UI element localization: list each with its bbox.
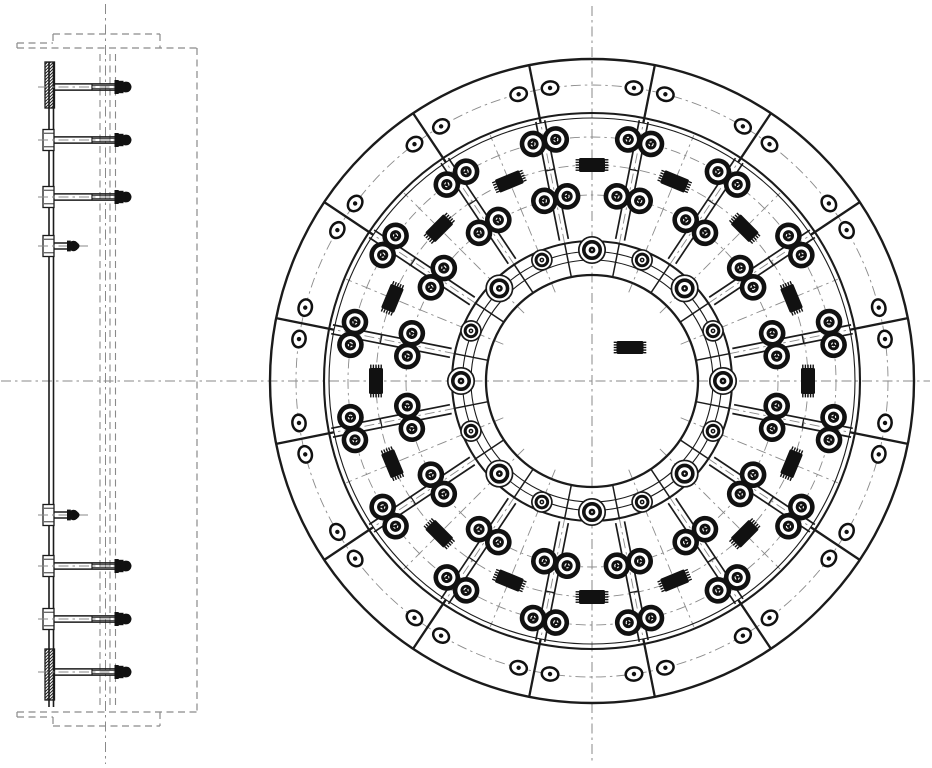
- arm-bolt: [615, 126, 641, 152]
- hub-joint-line: [651, 265, 670, 293]
- spoke-arm: [394, 457, 552, 662]
- drawing-canvas: [0, 0, 932, 768]
- pad-holder: [369, 365, 383, 398]
- serrated-pad: [657, 568, 693, 593]
- hub-joint-line: [514, 469, 533, 497]
- pad-holder: [801, 365, 815, 398]
- hub-bolt-large: [710, 368, 736, 394]
- spoke-arm: [632, 101, 790, 306]
- rim-segment-bolt: [625, 80, 643, 95]
- arm-bolt: [764, 343, 790, 369]
- hub-bolt-large: [579, 499, 605, 525]
- assembly-technical-drawing: [0, 0, 932, 768]
- hub-bolt-large: [481, 270, 518, 307]
- serrated-pad: [576, 590, 609, 604]
- arm-bolt: [604, 183, 630, 209]
- pad-holder: [779, 446, 804, 482]
- rim-segment-bolt: [431, 626, 452, 646]
- hub-bolt-small: [458, 318, 484, 344]
- hub-bolt-small: [629, 489, 655, 515]
- rim-segment-bolt: [509, 86, 528, 103]
- arm-bolt: [399, 320, 425, 346]
- arm-bolt: [627, 548, 653, 574]
- hub-joint-line: [613, 244, 620, 277]
- rim-segment-bolt: [759, 608, 780, 629]
- pad-holder: [492, 568, 528, 593]
- serrated-pad: [779, 446, 804, 482]
- serrated-pad: [801, 365, 815, 398]
- rim-segment-bolt: [297, 445, 314, 464]
- rim-segment-bolt: [819, 548, 840, 569]
- pad-holder: [492, 169, 528, 194]
- rim-segment-bolt: [656, 86, 675, 103]
- rim-joint-line: [850, 318, 908, 330]
- arm-bolt: [821, 404, 847, 430]
- rim-joint-line: [529, 65, 541, 123]
- hub-joint-line: [680, 303, 708, 322]
- hub-bolt-small: [700, 318, 726, 344]
- serrated-pad: [779, 281, 804, 317]
- arm-bolt: [399, 416, 425, 442]
- hub-joint-line: [514, 265, 533, 293]
- serrated-pad: [657, 169, 693, 194]
- hub-joint-line: [613, 485, 620, 518]
- pad-holder: [576, 590, 609, 604]
- arm-bolt: [394, 343, 420, 369]
- center-key-mark: [614, 341, 647, 354]
- arm-bolt: [531, 548, 557, 574]
- hub-joint-line: [476, 440, 504, 459]
- arm-bolt: [337, 332, 363, 358]
- hub-bolt-small: [629, 247, 655, 273]
- rim-segment-bolt: [291, 414, 306, 432]
- hub-bolt-small: [700, 418, 726, 444]
- hub-bolt-small: [458, 418, 484, 444]
- arm-bolt: [604, 553, 630, 579]
- spoke-arm: [312, 183, 517, 341]
- serrated-pad: [576, 158, 609, 172]
- rim-segment-bolt: [291, 330, 306, 348]
- stud-bolt-long: [38, 665, 134, 679]
- rim-segment-bolt: [732, 626, 753, 646]
- rim-joint-line: [276, 318, 334, 330]
- rim-joint-line: [643, 639, 655, 697]
- arm-bolt: [554, 553, 580, 579]
- rim-segment-bolt: [656, 659, 675, 676]
- hub-bolt-large: [481, 455, 518, 492]
- pad-holder: [380, 446, 405, 482]
- spoke-arm: [668, 183, 873, 341]
- pad-holder: [657, 568, 693, 593]
- arm-bolt: [615, 610, 641, 636]
- arm-bolt: [543, 610, 569, 636]
- pad-holder: [576, 158, 609, 172]
- arm-bolt: [342, 309, 368, 335]
- pad-holder: [380, 281, 405, 317]
- hub-joint-line: [651, 469, 670, 497]
- rim-segment-bolt: [837, 220, 857, 241]
- spoke-arm: [632, 457, 790, 662]
- rim-segment-bolt: [327, 521, 347, 542]
- rim-segment-bolt: [431, 116, 452, 136]
- arm-bolt: [520, 131, 546, 157]
- hub-bolt-large: [666, 270, 703, 307]
- spoke-arm: [668, 421, 873, 579]
- rim-segment-bolt: [819, 193, 840, 214]
- hub-bolt-large: [579, 237, 605, 263]
- rim-segment-bolt: [297, 298, 314, 317]
- rim-joint-line: [529, 639, 541, 697]
- arm-bolt: [764, 393, 790, 419]
- rim-joint-line: [643, 65, 655, 123]
- rim-segment-bolt: [345, 548, 366, 569]
- arm-bolt: [638, 131, 664, 157]
- rim-segment-bolt: [732, 116, 753, 136]
- arm-bolt: [520, 605, 546, 631]
- rim-segment-bolt: [509, 659, 528, 676]
- spoke-arm: [312, 421, 517, 579]
- serrated-pad: [380, 446, 405, 482]
- rim-segment-bolt: [877, 414, 892, 432]
- arm-bolt: [543, 126, 569, 152]
- arm-bolt: [627, 188, 653, 214]
- arm-bolt: [554, 183, 580, 209]
- hub-bolt-large: [448, 368, 474, 394]
- hub-joint-line: [476, 303, 504, 322]
- arm-bolt: [531, 188, 557, 214]
- rim-segment-bolt: [625, 666, 643, 681]
- hub-joint-line: [696, 402, 729, 409]
- hub-joint-line: [455, 402, 488, 409]
- hub-bolt-small: [529, 247, 555, 273]
- pad-holder: [657, 169, 693, 194]
- arm-bolt: [337, 404, 363, 430]
- hub-bolt-small: [529, 489, 555, 515]
- arm-bolt: [816, 427, 842, 453]
- rim-segment-bolt: [541, 80, 559, 95]
- serrated-pad: [492, 169, 528, 194]
- arm-bolt: [394, 393, 420, 419]
- side-section-view: [17, 34, 197, 726]
- arm-bolt: [759, 320, 785, 346]
- rim-segment-bolt: [837, 521, 857, 542]
- serrated-pad: [492, 568, 528, 593]
- pad-holder: [779, 281, 804, 317]
- hub-joint-line: [565, 244, 572, 277]
- rim-joint-line: [850, 432, 908, 444]
- serrated-pad: [380, 281, 405, 317]
- serrated-pad: [369, 365, 383, 398]
- rim-segment-bolt: [541, 666, 559, 681]
- hub-joint-line: [680, 440, 708, 459]
- arm-bolt: [759, 416, 785, 442]
- arm-bolt: [638, 605, 664, 631]
- arm-bolt: [821, 332, 847, 358]
- rim-segment-bolt: [345, 193, 366, 214]
- rim-segment-bolt: [877, 330, 892, 348]
- rim-segment-bolt: [759, 134, 780, 155]
- rim-segment-bolt: [870, 298, 887, 317]
- rim-segment-bolt: [327, 220, 347, 241]
- hub-joint-line: [696, 354, 729, 361]
- hub-joint-line: [565, 485, 572, 518]
- rim-segment-bolt: [404, 134, 425, 155]
- hub-joint-line: [455, 354, 488, 361]
- rim-joint-line: [276, 432, 334, 444]
- rim-segment-bolt: [870, 445, 887, 464]
- arm-bolt: [816, 309, 842, 335]
- rim-segment-bolt: [404, 608, 425, 629]
- spoke-arm: [394, 101, 552, 306]
- hub-bolt-large: [666, 455, 703, 492]
- arm-bolt: [342, 427, 368, 453]
